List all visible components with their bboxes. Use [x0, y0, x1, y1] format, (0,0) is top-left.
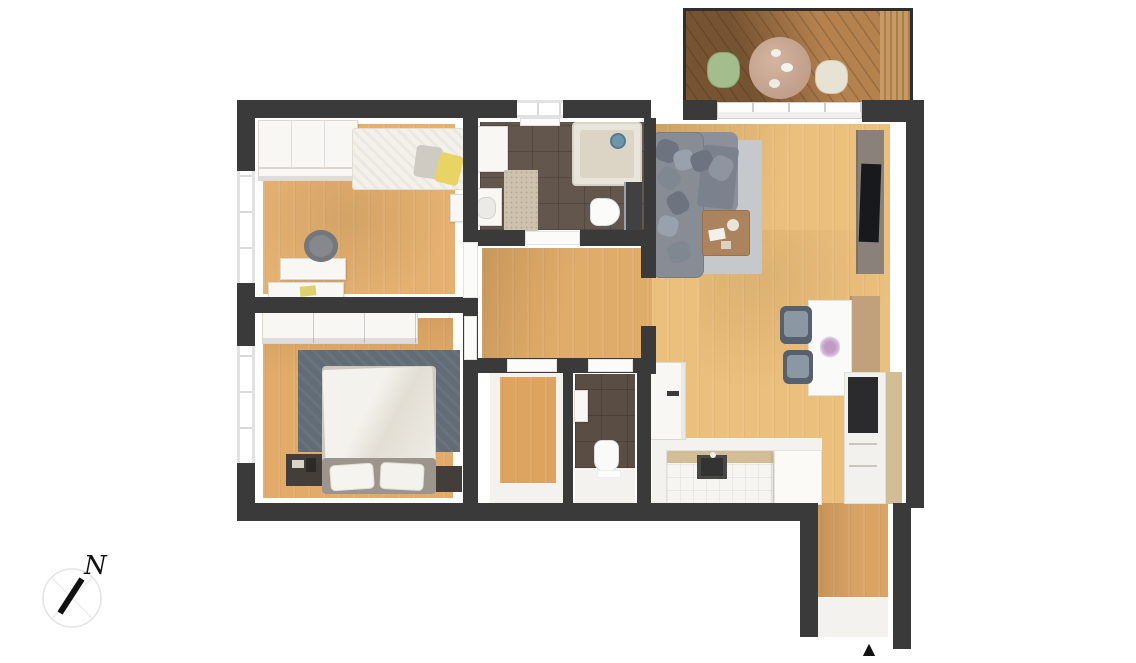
compass-label: N	[83, 551, 108, 581]
door-top-bedroom	[463, 242, 478, 298]
balcony-sliding-door	[717, 102, 862, 119]
left-wall-upper	[237, 100, 255, 171]
bed-pillow	[379, 462, 424, 491]
window-left-upper	[237, 171, 255, 283]
balcony	[683, 8, 913, 104]
nightstand-deco	[306, 458, 316, 472]
nightstand-left	[286, 454, 322, 486]
kitchen-cooktop	[848, 377, 878, 433]
bathtub	[572, 122, 642, 186]
wall-stub-upper	[641, 242, 656, 278]
table-magazine	[708, 228, 726, 242]
top-wall-block	[683, 100, 717, 120]
table-plate	[769, 79, 780, 88]
bath-mat	[504, 170, 538, 232]
desk-chair	[304, 230, 338, 262]
wall-bed1-bottom	[237, 297, 478, 313]
table-plate	[781, 63, 793, 72]
unit-handle	[849, 443, 877, 445]
wardrobe-top-bedroom	[258, 120, 358, 168]
bathroom-window	[517, 100, 563, 118]
right-wall	[906, 120, 924, 508]
door-bathroom	[525, 231, 580, 245]
chair-seat	[784, 311, 808, 337]
door-wc	[588, 359, 633, 372]
window-left-lower	[237, 346, 255, 463]
desk	[280, 258, 346, 280]
nightstand-right	[436, 466, 462, 492]
shadow-corridor	[818, 503, 884, 597]
entrance-marker-icon: ▲	[855, 638, 883, 662]
balcony-chair-green	[707, 52, 740, 88]
floor-plan: N ▲	[0, 0, 1136, 663]
corridor-right-wall	[893, 503, 911, 649]
tv	[859, 164, 882, 243]
duvet	[322, 366, 435, 466]
compass-needle	[60, 579, 82, 613]
corridor-landing	[818, 597, 893, 637]
coffee-table	[702, 210, 750, 256]
bottom-wall	[237, 503, 818, 521]
kitchen-tall-units	[844, 372, 886, 504]
wc-mat	[597, 470, 621, 478]
left-wall-mid	[237, 283, 255, 346]
top-wall-left	[237, 100, 517, 118]
floor-storage	[500, 377, 556, 483]
unit-handle	[849, 465, 877, 467]
table-flowers	[820, 336, 840, 358]
corridor-left-wall	[800, 521, 818, 637]
shadow-hallway	[482, 248, 652, 358]
kitchen-sink	[697, 455, 727, 479]
table-plate	[727, 219, 739, 231]
bed-pillow	[329, 462, 375, 491]
chair-seat	[787, 355, 809, 378]
wall-bath-right	[644, 118, 656, 242]
door-master-bedroom	[464, 316, 477, 360]
wall-wc-right	[637, 365, 651, 505]
wardrobe-master	[262, 312, 418, 344]
balcony-chair-cream	[815, 60, 848, 94]
toilet	[590, 198, 620, 226]
table-plate	[771, 49, 781, 57]
bathtub-basin	[580, 130, 634, 178]
nightstand-deco	[292, 460, 304, 468]
top-wall-mid	[563, 100, 651, 118]
sink-basin	[701, 458, 723, 476]
door-storage	[507, 359, 557, 372]
kitchen-counter-corner	[774, 450, 822, 505]
desk-deco	[300, 285, 317, 297]
basin-bowl	[477, 197, 496, 219]
wall-storage-wc	[563, 372, 573, 503]
shower-head-icon	[610, 133, 626, 149]
fridge-vent	[667, 391, 679, 396]
wall-bed1-bath	[463, 118, 478, 242]
table-deco	[721, 241, 731, 249]
dining-chair	[783, 350, 813, 384]
wc-shelf	[574, 390, 588, 422]
window-sill	[520, 118, 560, 126]
top-wall-corner	[862, 100, 924, 122]
compass: N	[28, 540, 138, 655]
sink-faucet	[710, 452, 716, 458]
dining-chair	[780, 306, 812, 344]
kitchen-wood-panel	[886, 372, 902, 504]
wardrobe-shelf	[258, 168, 358, 181]
wc-toilet	[594, 440, 619, 472]
balcony-table	[749, 37, 811, 99]
